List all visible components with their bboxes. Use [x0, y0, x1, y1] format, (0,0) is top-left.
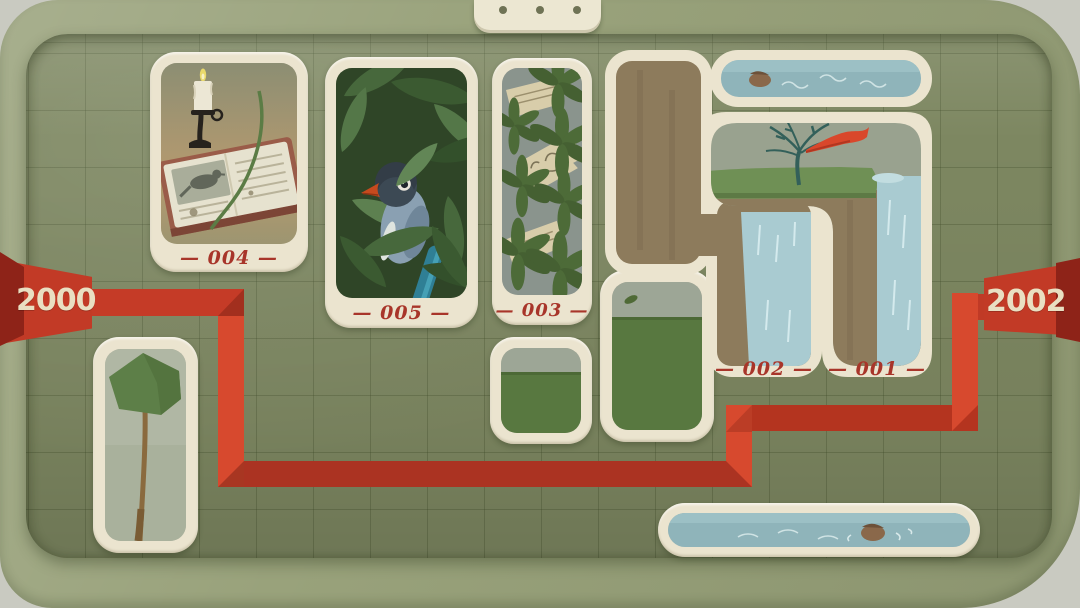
card-bird-005[interactable]: — 005 —: [325, 57, 478, 328]
ribbon-corner: [218, 289, 244, 316]
water-pill-bottom-content: [668, 513, 970, 547]
notch-dot-icon: [536, 6, 544, 14]
ribbon-segment-h3: [752, 405, 952, 431]
tile-number-label: — 002 —: [714, 358, 814, 380]
ribbon-segment-v1: [218, 316, 244, 461]
water-pill-top-content: [721, 60, 921, 97]
waterfall-tile-complex: [595, 40, 940, 390]
bird-illustration: [336, 68, 467, 298]
rock-icon: [749, 73, 771, 87]
tile-tree[interactable]: [93, 337, 198, 553]
notch-dot-icon: [573, 6, 581, 14]
card-journal-004[interactable]: — 004 —: [150, 52, 308, 272]
card-number-label: — 003 —: [492, 300, 592, 321]
tile-grass-small[interactable]: [490, 337, 592, 444]
card-number-label: — 004 —: [150, 247, 308, 269]
notch-dot-icon: [499, 6, 507, 14]
ribbon-corner: [952, 405, 978, 431]
ribbon-corner: [726, 461, 752, 487]
ribbon-fold: [952, 405, 978, 431]
tile-number-label: — 001 —: [827, 358, 927, 380]
ribbon-segment-h2: [244, 461, 726, 487]
tree-illustration: [105, 349, 186, 541]
card-number-label: — 005 —: [325, 302, 478, 324]
year-label-left: 2000: [16, 283, 90, 318]
ribbon-corner: [218, 461, 244, 487]
tile-grass: [501, 372, 581, 433]
tile-water-pill-bottom[interactable]: [658, 503, 980, 557]
card-letter-003[interactable]: — 003 —: [492, 58, 592, 325]
drawer-pull-tab[interactable]: [474, 0, 601, 33]
ribbon-segment-v2: [726, 405, 752, 461]
ribbon-fold: [726, 405, 752, 432]
ribbon-fold: [726, 461, 752, 487]
year-label-right: 2002: [986, 284, 1060, 319]
ribbon-fold: [218, 289, 244, 316]
letter-illustration: [502, 68, 582, 295]
ribbon-fold: [218, 461, 244, 487]
journal-illustration: [161, 63, 297, 244]
year-banner-2000: 2000: [0, 252, 94, 346]
ribbon-segment-v3: [952, 293, 978, 405]
year-banner-2002: 2002: [984, 256, 1080, 344]
